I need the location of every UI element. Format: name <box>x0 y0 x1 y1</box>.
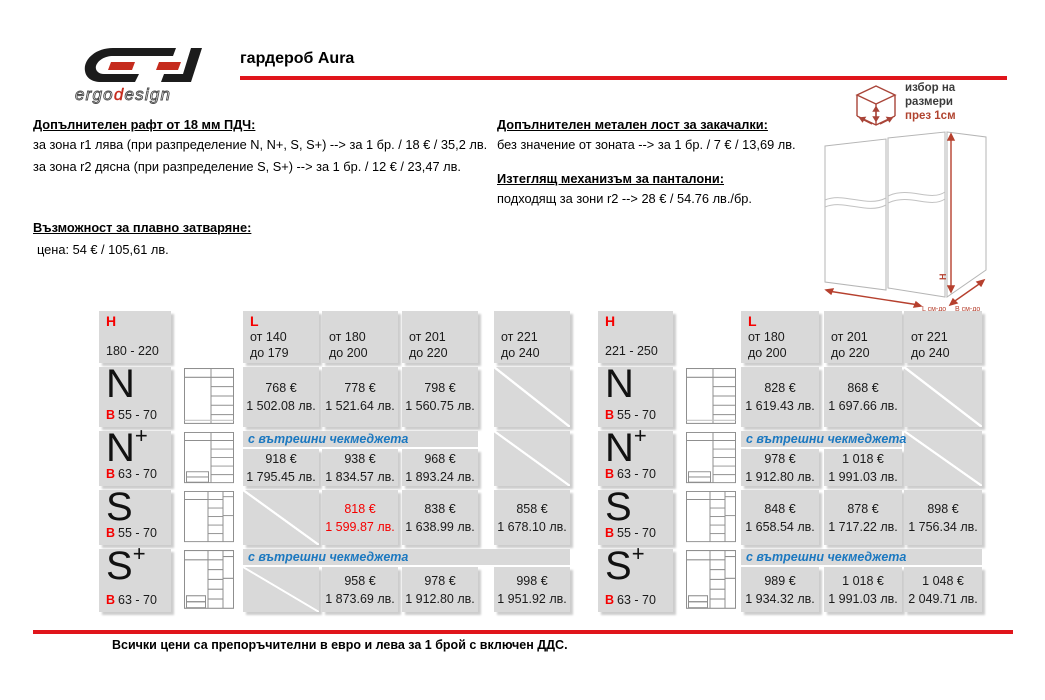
option-line: подходящ за зони r2 --> 28 € / 54.76 лв.… <box>497 191 752 206</box>
price-cell: 989 €1 934.32 лв. <box>741 567 819 612</box>
price-cell: 968 €1 893.24 лв. <box>402 449 478 486</box>
option-line: за зона r1 лява (при разпределение N, N+… <box>33 137 487 152</box>
footer-rule <box>33 630 1013 634</box>
price-cell: 868 €1 697.66 лв. <box>824 367 902 427</box>
layout-icon-n-plus <box>686 432 736 485</box>
price-cell: 958 €1 873.69 лв. <box>322 567 398 612</box>
price-cell: 848 €1 658.54 лв. <box>741 490 819 545</box>
model-cell: N В55 - 70 <box>99 367 171 427</box>
price-cell: 1 018 €1 991.03 лв. <box>824 449 902 486</box>
price-cell: 998 €1 951.92 лв. <box>494 567 570 612</box>
h-range: 221 - 250 <box>605 344 658 358</box>
drawer-note: с вътрешни чекмеджета <box>746 431 906 447</box>
price-sheet: ergodesign гардероб Aura Допълнителен ра… <box>0 0 1045 700</box>
size-note-line: избор на <box>905 82 955 94</box>
option-line: без значение от зоната --> за 1 бр. / 7 … <box>497 137 796 152</box>
layout-icon-n <box>184 368 234 426</box>
option-heading: Изтеглящ механизъм за панталони: <box>497 171 724 186</box>
empty-cell <box>494 367 570 427</box>
price-cell: 918 €1 795.45 лв. <box>243 449 319 486</box>
model-cell: S+ В63 - 70 <box>99 549 171 612</box>
h-range: 180 - 220 <box>106 344 159 358</box>
l-header-cell: L от 140 до 179 <box>243 311 319 363</box>
empty-cell <box>904 431 982 486</box>
l-header-cell: от 201 до 220 <box>402 311 478 363</box>
svg-text:ergodesign: ergodesign <box>75 85 171 104</box>
model-cell: S В55 - 70 <box>598 490 673 545</box>
size-note-line: размери <box>905 96 953 108</box>
l-header-cell: от 221 до 240 <box>904 311 982 363</box>
empty-cell <box>494 431 570 486</box>
empty-cell <box>904 367 982 427</box>
price-cell: 768 €1 502.08 лв. <box>243 367 319 427</box>
price-cell: 1 018 €1 991.03 лв. <box>824 567 902 612</box>
price-cell: 778 €1 521.64 лв. <box>322 367 398 427</box>
model-cell: N В55 - 70 <box>598 367 673 427</box>
option-heading: Допълнителен рафт от 18 мм ПДЧ: <box>33 117 255 132</box>
l-header-cell: от 221 до 240 <box>494 311 570 363</box>
l-header-cell: от 180 до 200 <box>322 311 398 363</box>
empty-cell <box>243 567 319 612</box>
drawer-note: с вътрешни чекмеджета <box>248 549 408 565</box>
price-cell: 938 €1 834.57 лв. <box>322 449 398 486</box>
layout-icon-s-plus <box>184 550 234 611</box>
title-rule <box>240 76 1007 80</box>
price-cell: 798 €1 560.75 лв. <box>402 367 478 427</box>
layout-icon-n-plus <box>184 432 234 485</box>
h-header-cell: H 221 - 250 <box>598 311 673 363</box>
price-cell: 858 €1 678.10 лв. <box>494 490 570 545</box>
price-cell: 838 €1 638.99 лв. <box>402 490 478 545</box>
layout-icon-s-plus <box>686 550 736 611</box>
l-header-cell: L от 180 до 200 <box>741 311 819 363</box>
price-cell: 978 €1 912.80 лв. <box>402 567 478 612</box>
price-cell: 828 €1 619.43 лв. <box>741 367 819 427</box>
l-label: L <box>748 313 757 329</box>
layout-icon-s <box>184 491 234 544</box>
empty-cell <box>243 490 319 545</box>
option-heading: Допълнителен метален лост за закачалки: <box>497 117 768 132</box>
model-cell: N+ В63 - 70 <box>99 431 171 486</box>
price-cell: 1 048 €2 049.71 лв. <box>904 567 982 612</box>
l-header-cell: от 201 до 220 <box>824 311 902 363</box>
option-line: цена: 54 € / 105,61 лв. <box>37 242 169 257</box>
model-cell: N+ В63 - 70 <box>598 431 673 486</box>
layout-icon-n <box>686 368 736 426</box>
layout-icon-s <box>686 491 736 544</box>
model-cell: S В55 - 70 <box>99 490 171 545</box>
drawer-note: с вътрешни чекмеджета <box>746 549 906 565</box>
price-cell-highlighted: 818 €1 599.87 лв. <box>322 490 398 545</box>
footer-note: Всички цени са препоръчителни в евро и л… <box>112 638 568 652</box>
option-heading: Възможност за плавно затваряне: <box>33 220 251 235</box>
price-cell: 978 €1 912.80 лв. <box>741 449 819 486</box>
page-title: гардероб Aura <box>240 50 354 68</box>
wardrobe-diagram: H L см-до B см-до <box>822 120 1045 312</box>
h-label: H <box>605 313 615 329</box>
svg-text:H: H <box>938 274 948 281</box>
h-header-cell: H 180 - 220 <box>99 311 171 363</box>
price-cell: 898 €1 756.34 лв. <box>904 490 982 545</box>
drawer-note: с вътрешни чекмеджета <box>248 431 408 447</box>
h-label: H <box>106 313 116 329</box>
ergodesign-logo: ergodesign <box>73 42 205 106</box>
model-cell: S+ В63 - 70 <box>598 549 673 612</box>
price-cell: 878 €1 717.22 лв. <box>824 490 902 545</box>
l-label: L <box>250 313 259 329</box>
option-line: за зона r2 дясна (при разпределение S, S… <box>33 159 461 174</box>
